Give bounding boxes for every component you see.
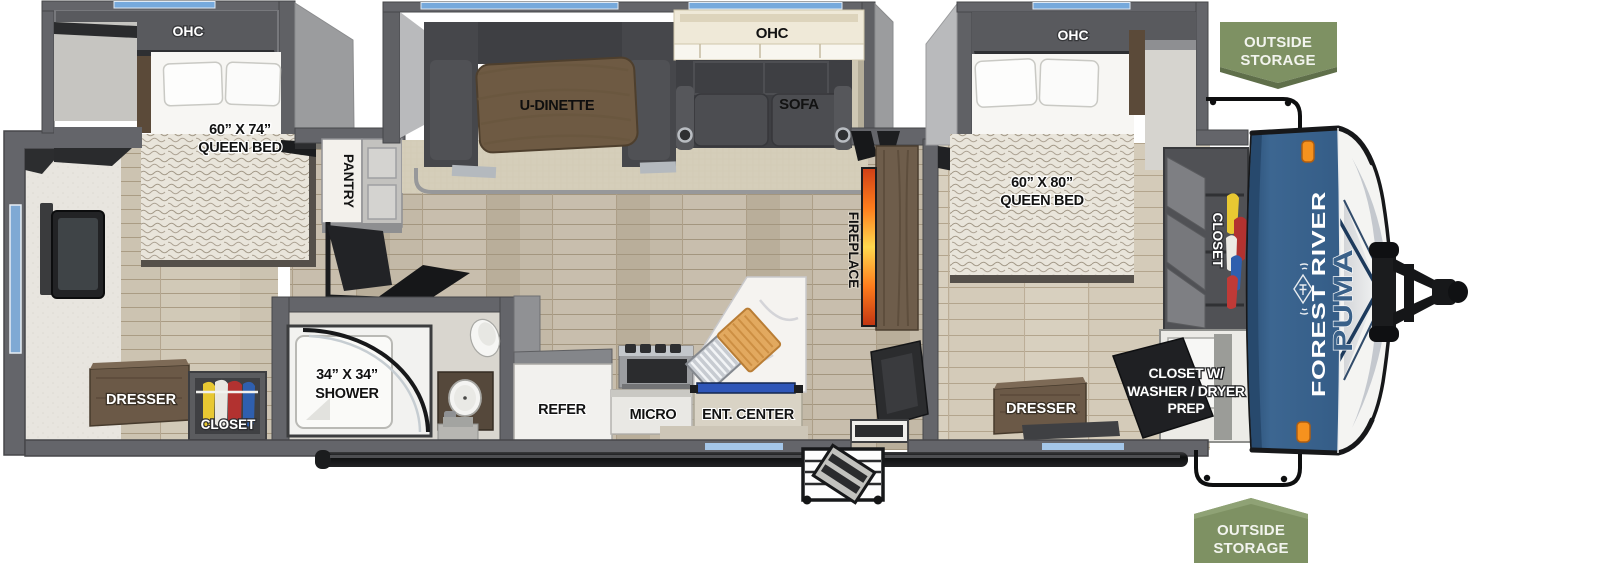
- svg-text:QUEEN BED: QUEEN BED: [198, 140, 282, 156]
- svg-text:U-DINETTE: U-DINETTE: [520, 98, 595, 114]
- svg-text:STORAGE: STORAGE: [1240, 52, 1315, 69]
- svg-text:DRESSER: DRESSER: [1006, 401, 1077, 417]
- svg-text:34” X 34”: 34” X 34”: [316, 367, 378, 383]
- svg-text:PANTRY: PANTRY: [341, 154, 356, 208]
- svg-text:ENT. CENTER: ENT. CENTER: [702, 407, 795, 423]
- svg-text:SOFA: SOFA: [779, 96, 819, 113]
- svg-text:60” X 80”: 60” X 80”: [1011, 175, 1073, 191]
- svg-text:CLOSET W/: CLOSET W/: [1148, 365, 1223, 381]
- svg-text:CLOSET: CLOSET: [201, 417, 257, 432]
- svg-text:CLOSET: CLOSET: [1210, 213, 1225, 269]
- svg-text:OHC: OHC: [172, 23, 203, 39]
- svg-text:REFER: REFER: [538, 402, 586, 418]
- svg-text:QUEEN BED: QUEEN BED: [1000, 193, 1084, 209]
- svg-text:DRESSER: DRESSER: [106, 392, 177, 408]
- svg-text:OUTSIDE: OUTSIDE: [1217, 522, 1285, 539]
- svg-text:OHC: OHC: [756, 25, 789, 42]
- svg-text:FIREPLACE: FIREPLACE: [846, 212, 861, 289]
- svg-text:OUTSIDE: OUTSIDE: [1244, 34, 1312, 51]
- svg-text:60” X 74”: 60” X 74”: [209, 122, 271, 138]
- svg-text:OHC: OHC: [1057, 27, 1088, 43]
- svg-text:MICRO: MICRO: [630, 407, 677, 423]
- svg-text:PREP: PREP: [1168, 400, 1205, 416]
- svg-text:SHOWER: SHOWER: [315, 386, 379, 402]
- svg-text:PUMA: PUMA: [1328, 248, 1358, 352]
- svg-text:WASHER / DRYER: WASHER / DRYER: [1127, 383, 1245, 399]
- svg-text:STORAGE: STORAGE: [1213, 540, 1288, 557]
- svg-text:FOREST RIVER: FOREST RIVER: [1309, 191, 1329, 397]
